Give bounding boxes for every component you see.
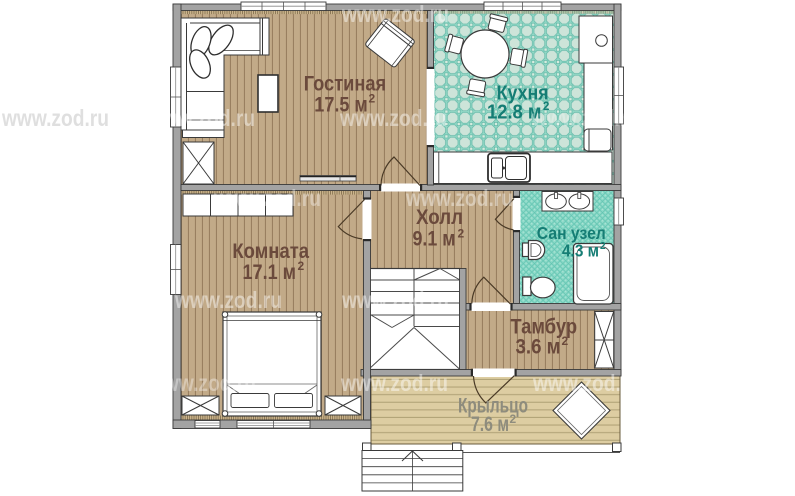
svg-text:www.zod.ru: www.zod.ru — [339, 105, 447, 131]
svg-text:4.3 м: 4.3 м — [562, 241, 599, 261]
svg-text:www.zod.ru: www.zod.ru — [174, 287, 282, 313]
svg-text:2: 2 — [458, 227, 465, 241]
svg-text:www.zod.ru: www.zod.ru — [531, 105, 639, 131]
svg-text:2: 2 — [369, 92, 376, 106]
svg-text:www.zod.ru: www.zod.ru — [405, 185, 513, 211]
svg-text:17.1 м: 17.1 м — [243, 261, 297, 284]
svg-text:2: 2 — [600, 241, 606, 252]
svg-text:www.zod.ru: www.zod.ru — [341, 1, 449, 27]
svg-text:2: 2 — [562, 334, 569, 348]
svg-text:2: 2 — [298, 259, 305, 273]
svg-text:7.6 м: 7.6 м — [471, 413, 509, 436]
svg-text:www.zod.ru: www.zod.ru — [147, 105, 255, 131]
svg-text:9.1 м: 9.1 м — [413, 228, 456, 251]
svg-text:2: 2 — [510, 412, 517, 426]
svg-text:www.zod.ru: www.zod.ru — [213, 185, 321, 211]
svg-text:www.zod.ru: www.zod.ru — [1, 105, 109, 131]
svg-text:www.zod.ru: www.zod.ru — [148, 370, 256, 396]
svg-text:www.zod.ru: www.zod.ru — [341, 287, 449, 313]
svg-text:www.zod.ru: www.zod.ru — [340, 370, 448, 396]
svg-text:www.zod.ru: www.zod.ru — [532, 370, 640, 396]
svg-text:3.6 м: 3.6 м — [516, 336, 561, 359]
